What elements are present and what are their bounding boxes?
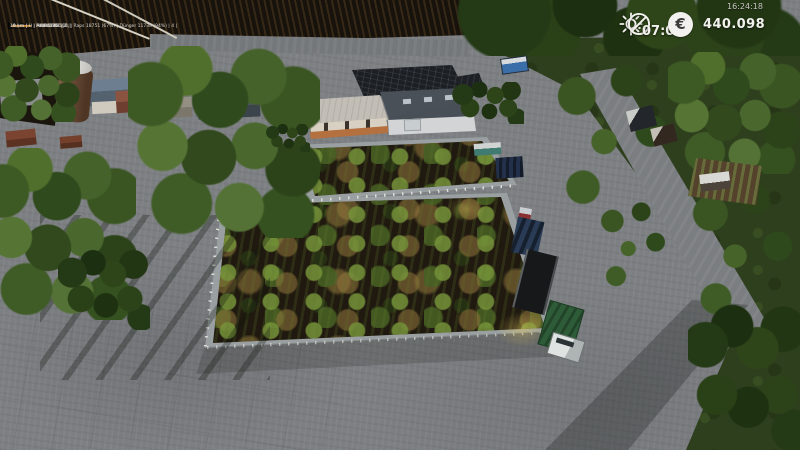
time-scale-indicator [639, 27, 646, 29]
game-viewport[interactable]: 16:24:18 13 km | H | Arion 500. | 2 | 20… [0, 0, 800, 450]
euro-icon: € [668, 12, 693, 37]
tree-cluster-topleft [0, 46, 80, 122]
trees-roadside [598, 198, 670, 290]
bush-row [266, 124, 310, 152]
implement-dark-blue [495, 156, 523, 179]
currency-symbol: € [675, 15, 685, 33]
roof-skylight [403, 99, 411, 104]
teal-container [474, 142, 502, 156]
warehouse-door [404, 119, 421, 132]
tree-cluster-right [668, 52, 800, 174]
red-shed-roof [60, 135, 83, 149]
garden-shed [699, 171, 731, 192]
vehicle-row: 10 km | H | Fastrac 83. | 1 | [8, 23, 12, 29]
tree-cluster-small [58, 248, 150, 330]
roof-skylight [424, 97, 432, 102]
trees-bottom-right [688, 298, 800, 450]
red-shed-roof [5, 128, 37, 147]
work-light-glow [446, 196, 486, 222]
hud-top-right: 07:06 € 440.098 [618, 10, 798, 38]
hedge-junction [452, 82, 524, 124]
vehicle-row-text: 10 km | H | Fastrac 83. | 1 | [10, 23, 71, 29]
money-balance: 440.098 [703, 17, 765, 32]
